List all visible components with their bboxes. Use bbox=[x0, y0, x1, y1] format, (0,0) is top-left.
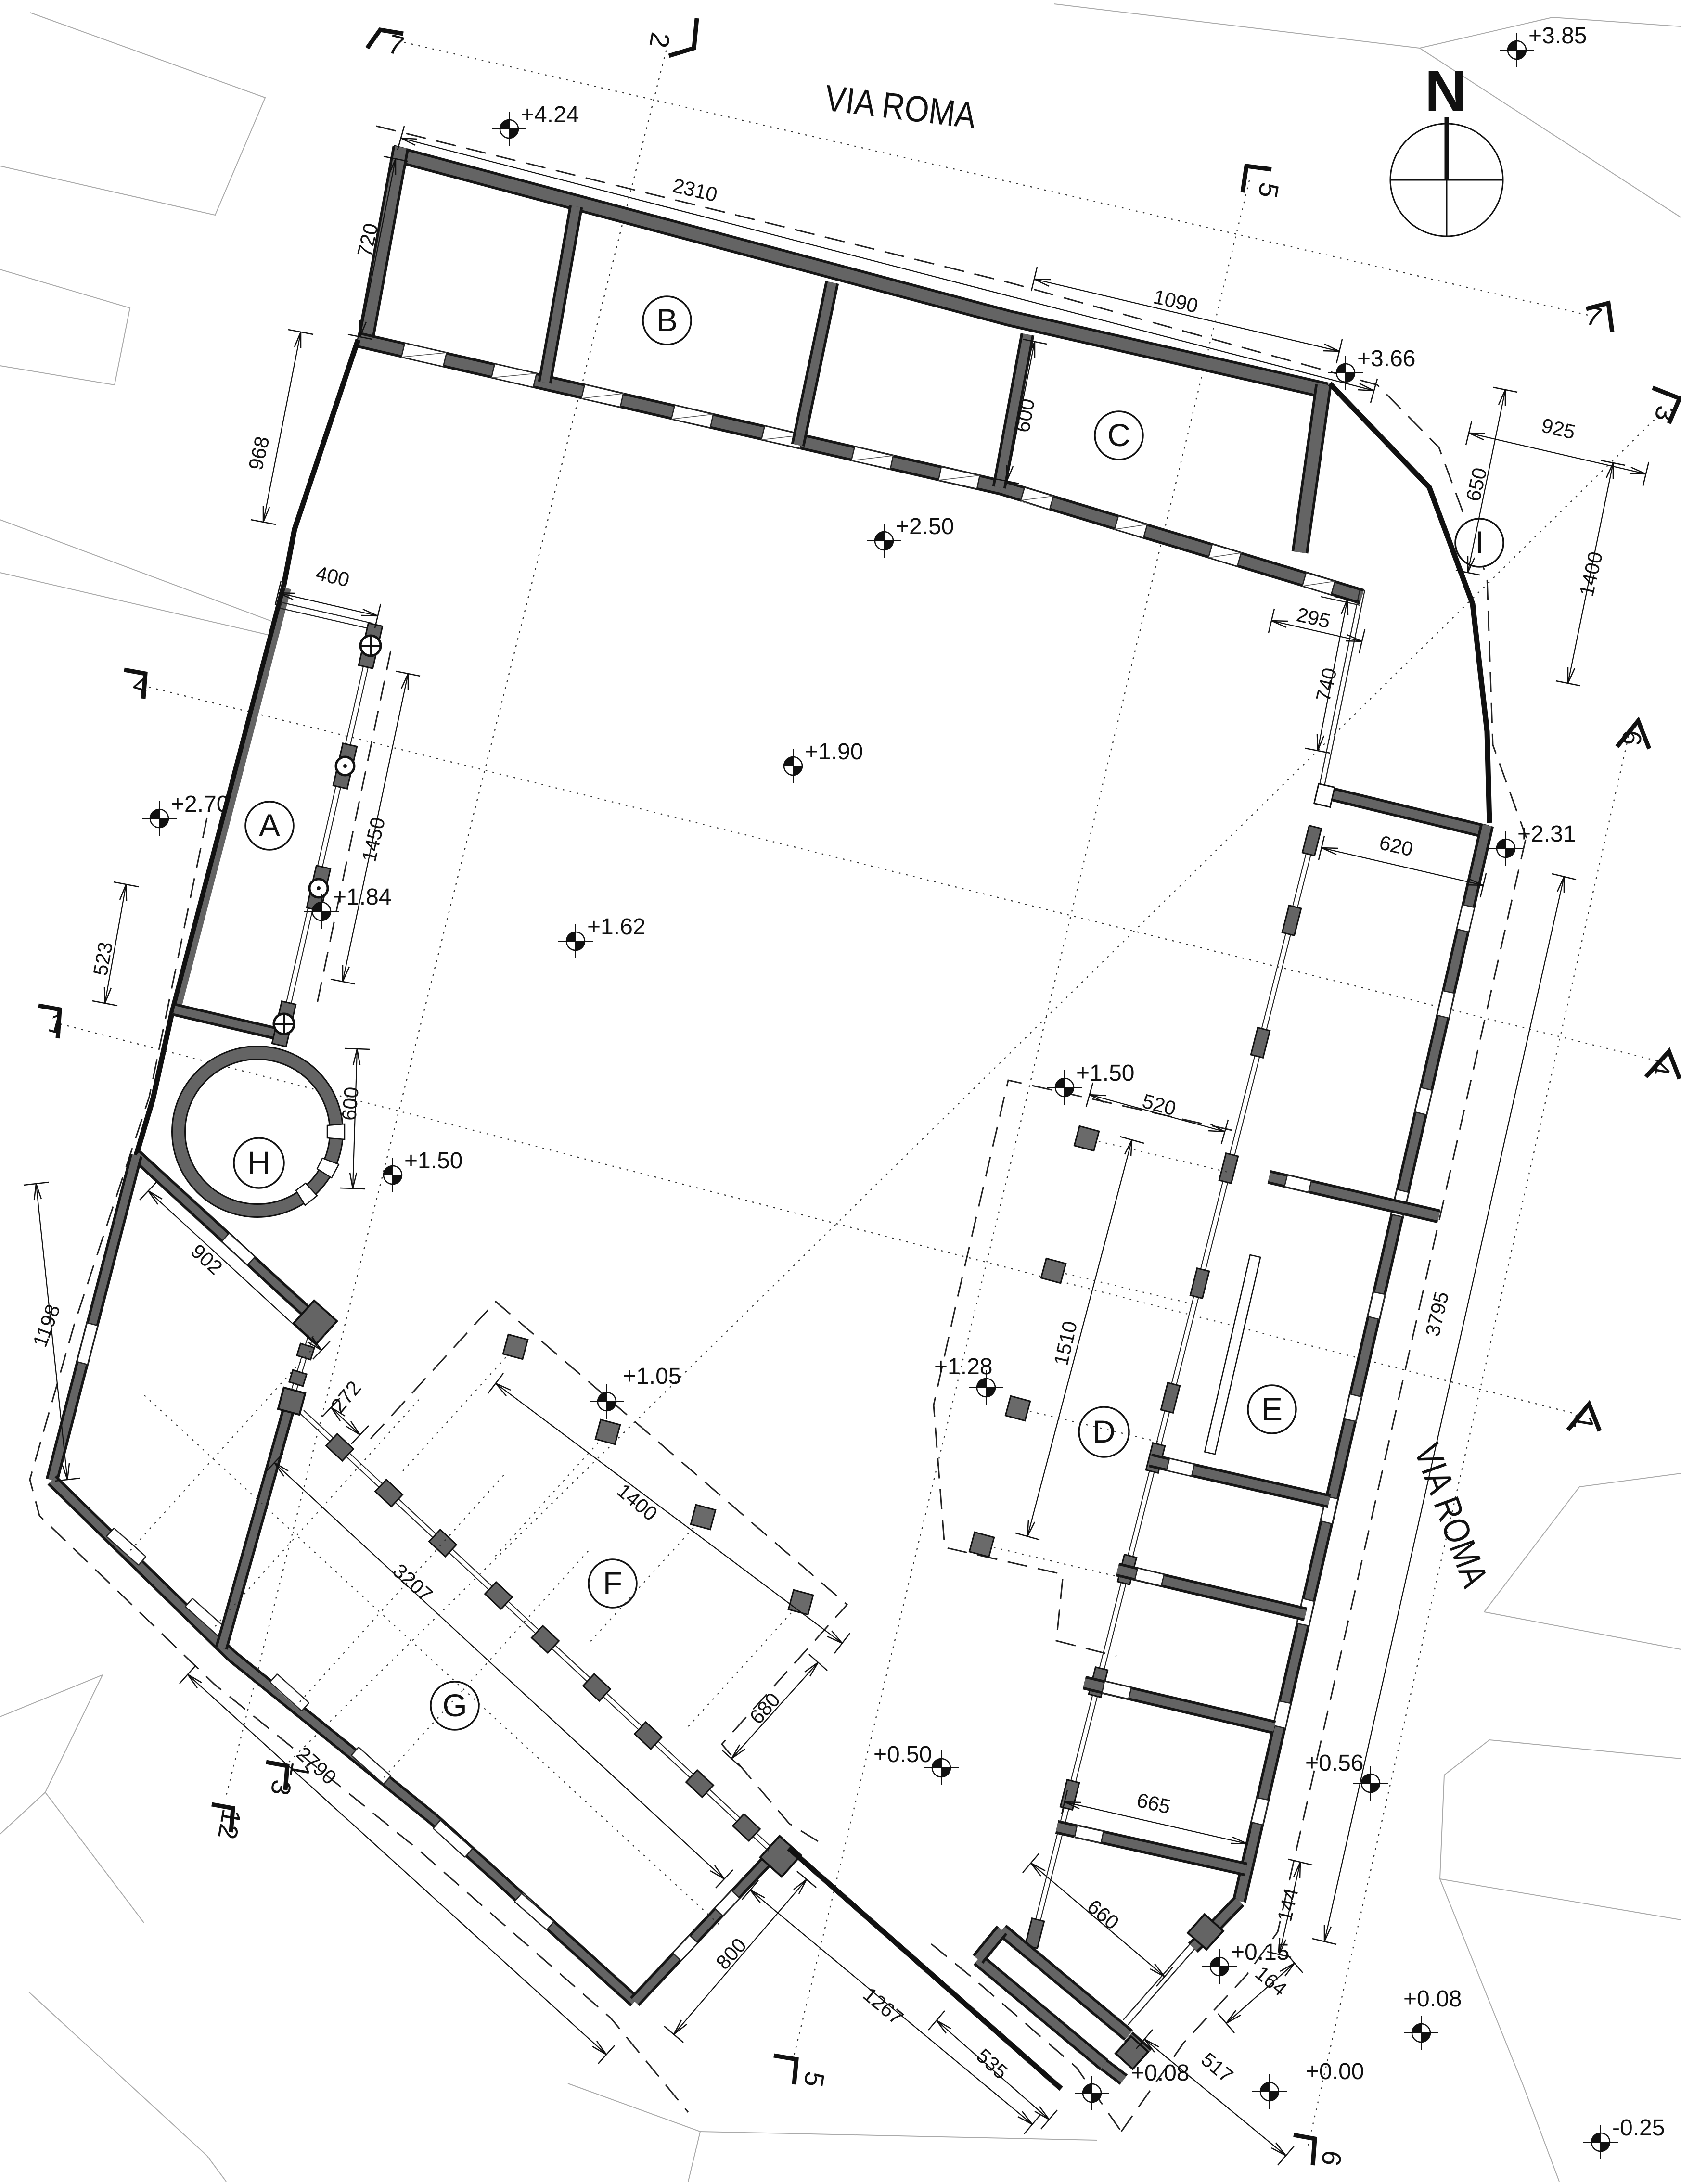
svg-text:+0.08: +0.08 bbox=[1403, 1986, 1462, 2012]
svg-text:A: A bbox=[259, 807, 280, 843]
svg-text:+2.50: +2.50 bbox=[896, 514, 954, 539]
svg-text:+2.70: +2.70 bbox=[171, 792, 229, 817]
svg-text:+1.62: +1.62 bbox=[587, 914, 645, 940]
svg-text:D: D bbox=[1092, 1414, 1116, 1449]
svg-text:+1.50: +1.50 bbox=[1076, 1060, 1134, 1086]
svg-text:+3.85: +3.85 bbox=[1528, 23, 1587, 49]
svg-text:+1.50: +1.50 bbox=[404, 1148, 462, 1174]
svg-text:F: F bbox=[603, 1565, 622, 1601]
svg-text:N: N bbox=[1425, 59, 1467, 123]
svg-text:G: G bbox=[442, 1687, 467, 1723]
svg-text:+0.15: +0.15 bbox=[1231, 1940, 1289, 1965]
svg-text:600: 600 bbox=[337, 1086, 363, 1122]
svg-text:+1.28: +1.28 bbox=[934, 1354, 992, 1379]
svg-text:+0.08: +0.08 bbox=[1131, 2060, 1189, 2086]
svg-text:+0.56: +0.56 bbox=[1305, 1750, 1363, 1776]
svg-text:+3.66: +3.66 bbox=[1357, 346, 1415, 371]
svg-text:+2.31: +2.31 bbox=[1517, 821, 1576, 847]
svg-text:+4.24: +4.24 bbox=[521, 102, 579, 128]
svg-text:+1.05: +1.05 bbox=[623, 1364, 681, 1389]
svg-text:-0.25: -0.25 bbox=[1612, 2115, 1665, 2141]
svg-text:+0.00: +0.00 bbox=[1306, 2059, 1364, 2084]
svg-text:C: C bbox=[1107, 417, 1130, 453]
svg-text:+1.90: +1.90 bbox=[805, 739, 863, 765]
svg-text:+0.50: +0.50 bbox=[873, 1742, 932, 1767]
svg-text:+1.84: +1.84 bbox=[333, 884, 391, 910]
svg-text:E: E bbox=[1261, 1391, 1283, 1427]
svg-text:H: H bbox=[247, 1145, 270, 1180]
svg-text:B: B bbox=[656, 302, 678, 338]
svg-text:12: 12 bbox=[212, 1807, 247, 1841]
